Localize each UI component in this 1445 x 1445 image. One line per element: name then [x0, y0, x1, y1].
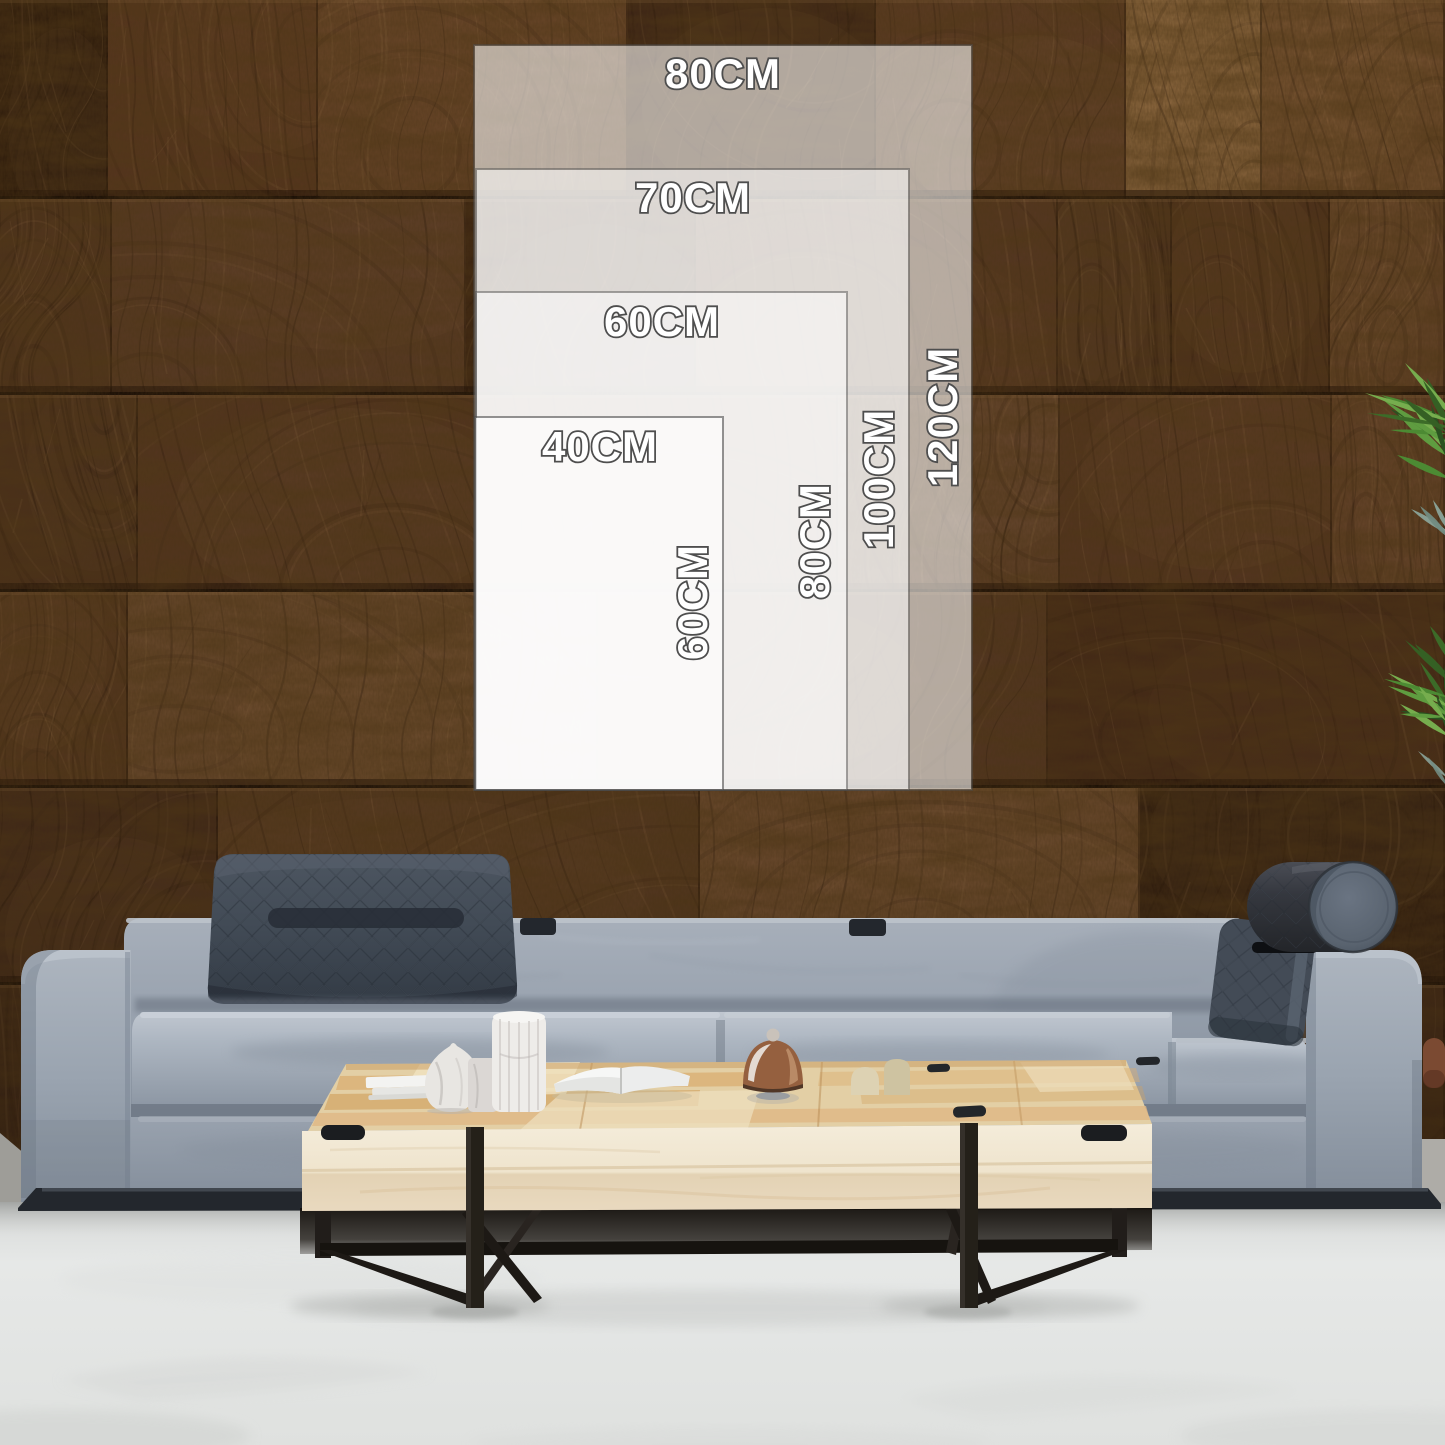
svg-text:70CM: 70CM: [635, 174, 751, 221]
svg-text:60CM: 60CM: [669, 544, 716, 660]
svg-text:40CM: 40CM: [542, 423, 658, 470]
svg-text:60CM: 60CM: [604, 298, 720, 345]
svg-text:120CM: 120CM: [919, 347, 966, 487]
svg-text:80CM: 80CM: [665, 50, 781, 97]
svg-text:100CM: 100CM: [855, 409, 902, 549]
svg-text:80CM: 80CM: [791, 483, 838, 599]
